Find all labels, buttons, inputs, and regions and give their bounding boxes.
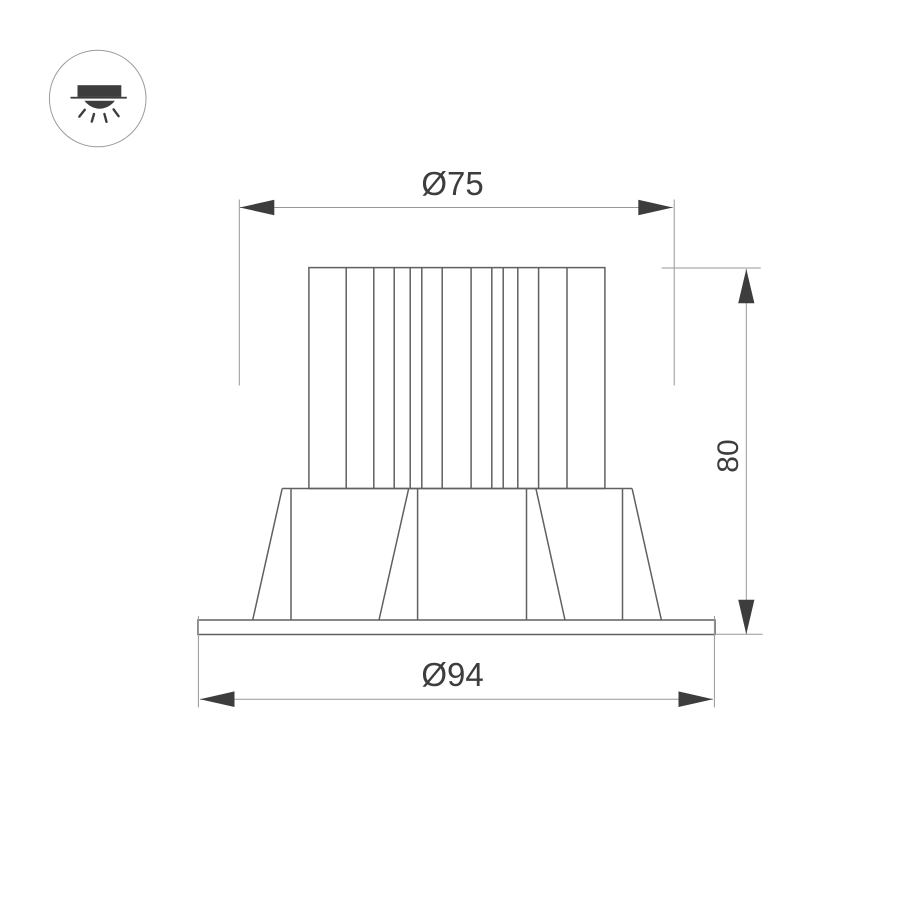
svg-text:Ø94: Ø94: [421, 656, 483, 693]
svg-text:Ø75: Ø75: [421, 165, 483, 202]
svg-text:80: 80: [712, 439, 745, 472]
